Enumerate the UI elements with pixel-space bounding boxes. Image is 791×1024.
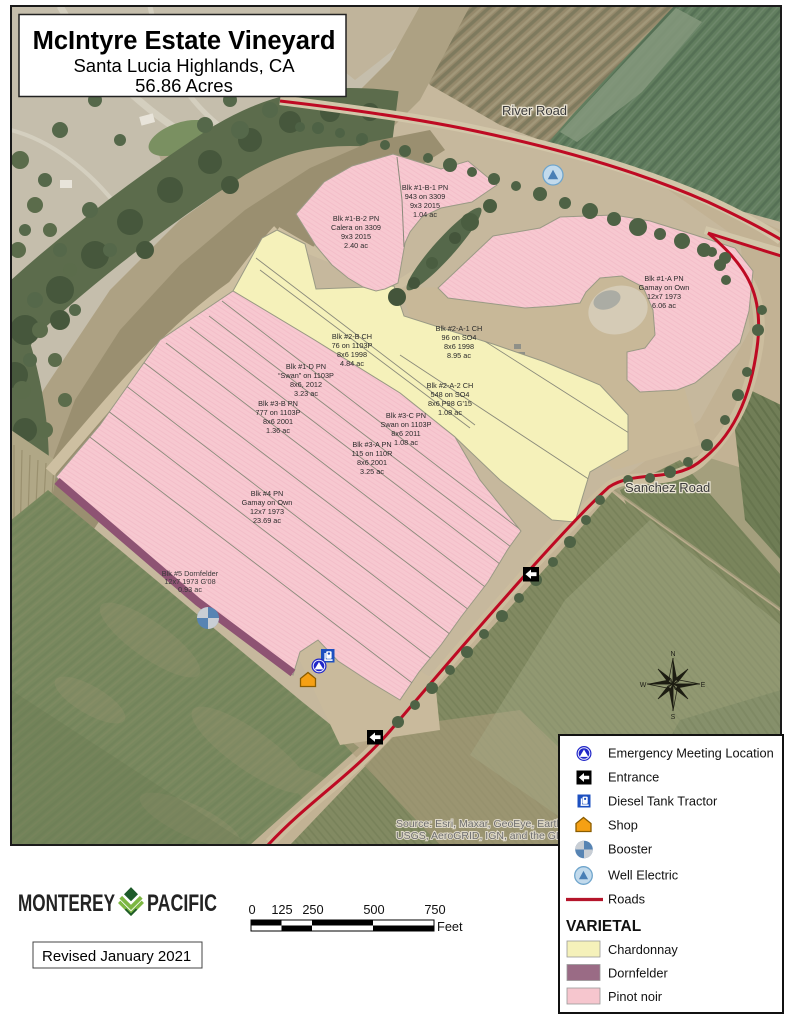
svg-text:0: 0 [248, 902, 255, 917]
svg-text:Blk #1-B-2 PN: Blk #1-B-2 PN [333, 214, 379, 223]
svg-text:8x6 2001: 8x6 2001 [263, 417, 293, 426]
svg-text:Santa Lucia Highlands, CA: Santa Lucia Highlands, CA [73, 55, 295, 76]
svg-text:Blk #1-B-1 PN: Blk #1-B-1 PN [402, 183, 448, 192]
svg-text:3.23 ac: 3.23 ac [294, 389, 318, 398]
svg-text:Blk #2-A-1 CH: Blk #2-A-1 CH [436, 324, 483, 333]
svg-text:Blk #3-C PN: Blk #3-C PN [386, 411, 426, 420]
svg-text:Source: Esri, Maxar, GeoEye, E: Source: Esri, Maxar, GeoEye, Earth [396, 818, 562, 830]
svg-text:Blk #1-D PN: Blk #1-D PN [286, 362, 326, 371]
svg-text:8.95 ac: 8.95 ac [447, 351, 471, 360]
svg-text:8x6 2001: 8x6 2001 [357, 458, 387, 467]
svg-text:River Road: River Road [502, 103, 567, 118]
svg-text:E: E [701, 682, 706, 689]
svg-text:500: 500 [363, 902, 384, 917]
svg-text:12x7 1973: 12x7 1973 [647, 292, 681, 301]
svg-text:6.06 ac: 6.06 ac [652, 301, 676, 310]
svg-text:Swan on 1103P: Swan on 1103P [381, 420, 432, 429]
svg-text:Blk #3-A PN: Blk #3-A PN [352, 440, 391, 449]
svg-text:1.04 ac: 1.04 ac [413, 210, 437, 219]
svg-text:PACIFIC: PACIFIC [147, 890, 217, 917]
svg-text:2.40 ac: 2.40 ac [344, 241, 368, 250]
svg-text:12x7 1973: 12x7 1973 [250, 507, 284, 516]
svg-text:Blk #3-B PN: Blk #3-B PN [258, 399, 298, 408]
svg-text:1.36 ac: 1.36 ac [266, 426, 290, 435]
svg-text:125: 125 [271, 902, 292, 917]
svg-text:Dornfelder: Dornfelder [608, 966, 668, 981]
svg-text:8x6 1998: 8x6 1998 [444, 342, 474, 351]
svg-text:56.86 Acres: 56.86 Acres [135, 75, 233, 96]
svg-text:MONTEREY: MONTEREY [18, 890, 115, 917]
svg-text:N: N [670, 651, 675, 658]
svg-text:Gamay on Own: Gamay on Own [639, 283, 690, 292]
svg-text:Chardonnay: Chardonnay [608, 942, 678, 957]
svg-text:VARIETAL: VARIETAL [566, 918, 641, 935]
svg-text:1.08 ac: 1.08 ac [438, 408, 462, 417]
svg-text:750: 750 [424, 902, 445, 917]
svg-text:Gamay on Own: Gamay on Own [242, 498, 293, 507]
svg-text:Feet: Feet [437, 919, 463, 934]
svg-text:1.08 ac: 1.08 ac [394, 438, 418, 447]
svg-text:943 on 3309: 943 on 3309 [405, 192, 446, 201]
svg-text:777 on 1103P: 777 on 1103P [256, 408, 301, 417]
svg-text:USGS, AeroGRID, IGN, and the G: USGS, AeroGRID, IGN, and the GI [396, 830, 559, 842]
svg-text:McIntyre Estate Vineyard: McIntyre Estate Vineyard [33, 27, 336, 55]
svg-text:Calera on 3309: Calera on 3309 [331, 223, 381, 232]
svg-text:W: W [640, 682, 647, 689]
svg-text:9x3 2015: 9x3 2015 [410, 201, 440, 210]
svg-text:Diesel Tank Tractor: Diesel Tank Tractor [608, 794, 718, 809]
svg-text:Blk #2-B CH: Blk #2-B CH [332, 332, 372, 341]
svg-text:Pinot noir: Pinot noir [608, 989, 663, 1004]
svg-text:115 on 110R: 115 on 110R [352, 449, 393, 458]
svg-text:Revised January 2021: Revised January 2021 [42, 948, 191, 965]
svg-text:Blk #2-A-2 CH: Blk #2-A-2 CH [427, 381, 474, 390]
svg-text:Well Electric: Well Electric [608, 868, 679, 883]
svg-text:96 on SO4: 96 on SO4 [442, 333, 477, 342]
svg-text:Blk #4 PN: Blk #4 PN [251, 489, 283, 498]
svg-text:548 on SO4: 548 on SO4 [431, 390, 470, 399]
svg-text:Shop: Shop [608, 818, 638, 833]
svg-text:4.84 ac: 4.84 ac [340, 359, 364, 368]
svg-text:Booster: Booster [608, 842, 653, 857]
svg-text:Entrance: Entrance [608, 770, 659, 785]
svg-text:8x6 P98 G'15: 8x6 P98 G'15 [428, 399, 472, 408]
svg-text:Emergency Meeting Location: Emergency Meeting Location [608, 746, 774, 761]
svg-text:“Swan” on 1103P: “Swan” on 1103P [278, 371, 334, 380]
svg-text:Sanchez Road: Sanchez Road [625, 480, 710, 495]
svg-text:76 on 1103P: 76 on 1103P [332, 341, 373, 350]
svg-text:8x6 2011: 8x6 2011 [391, 429, 420, 438]
svg-text:S: S [671, 714, 676, 721]
svg-text:23.69 ac: 23.69 ac [253, 516, 281, 525]
svg-text:0.93 ac: 0.93 ac [178, 585, 202, 594]
svg-text:9x3 2015: 9x3 2015 [341, 232, 371, 241]
svg-text:8x6, 2012: 8x6, 2012 [290, 380, 322, 389]
svg-text:Blk #1-A PN: Blk #1-A PN [644, 274, 683, 283]
svg-text:Roads: Roads [608, 892, 645, 907]
svg-text:8x6 1998: 8x6 1998 [337, 350, 367, 359]
svg-text:3.25 ac: 3.25 ac [360, 467, 384, 476]
svg-text:250: 250 [302, 902, 323, 917]
